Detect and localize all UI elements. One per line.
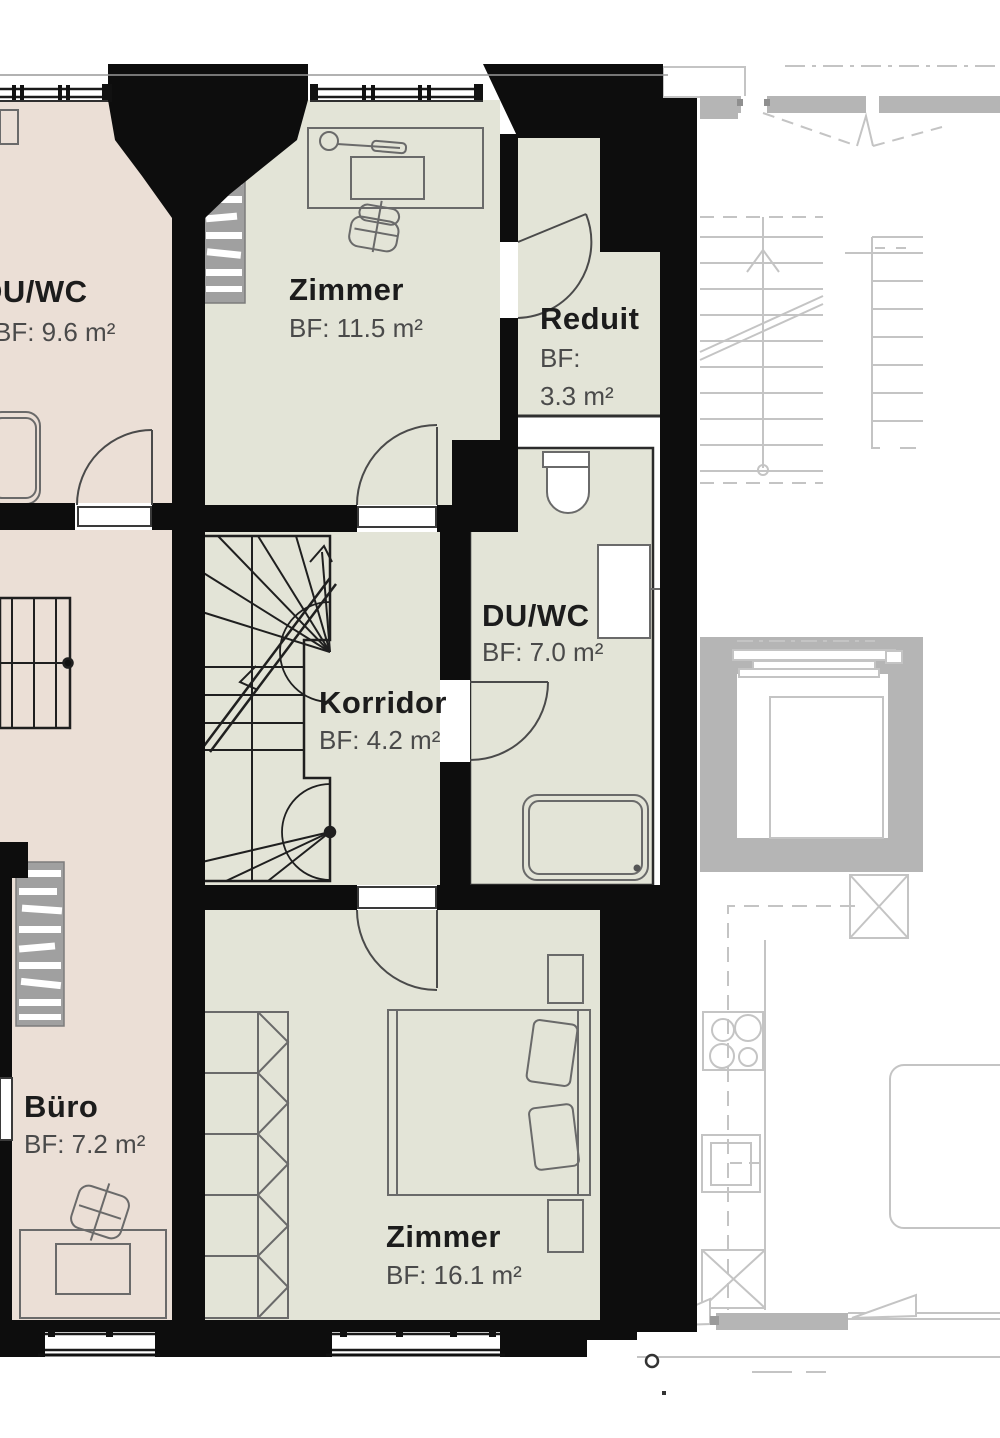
neighbor-door-leaf-2 <box>852 1295 916 1318</box>
buero-door-leaf <box>0 1078 12 1140</box>
area-reduit-line1: BF: <box>540 343 580 373</box>
label-buero: Büro <box>24 1089 98 1124</box>
area-buero: BF: 7.2 m² <box>24 1129 146 1159</box>
label-korridor: Korridor <box>319 685 447 720</box>
party-wall <box>172 218 205 1332</box>
area-duwc-left: BF: 9.6 m² <box>0 317 116 347</box>
label-zimmer-bottom: Zimmer <box>386 1219 501 1254</box>
floorplan: DU/WC BF: 9.6 m² Zimmer BF: 11.5 m² Redu… <box>0 0 1000 1438</box>
label-duwc-mid: DU/WC <box>482 598 590 633</box>
label-reduit: Reduit <box>540 301 639 336</box>
area-korridor: BF: 4.2 m² <box>319 725 441 755</box>
area-reduit-line2: 3.3 m² <box>540 381 614 411</box>
toilet-icon <box>543 452 589 513</box>
neighbor-table <box>890 1065 1000 1228</box>
label-zimmer-top: Zimmer <box>289 272 404 307</box>
label-duwc-left: DU/WC <box>0 274 88 309</box>
buero-bookshelf-icon <box>16 862 64 1026</box>
area-zimmer-bottom: BF: 16.1 m² <box>386 1260 522 1290</box>
area-zimmer-top: BF: 11.5 m² <box>289 313 423 343</box>
neighbor-staircase <box>700 217 923 483</box>
neighbor-entry-niche <box>663 67 745 97</box>
survey-marker <box>646 1355 658 1367</box>
elevator-car <box>770 697 883 838</box>
area-duwc-mid: BF: 7.0 m² <box>482 637 604 667</box>
neighbor-elevator <box>700 637 923 938</box>
